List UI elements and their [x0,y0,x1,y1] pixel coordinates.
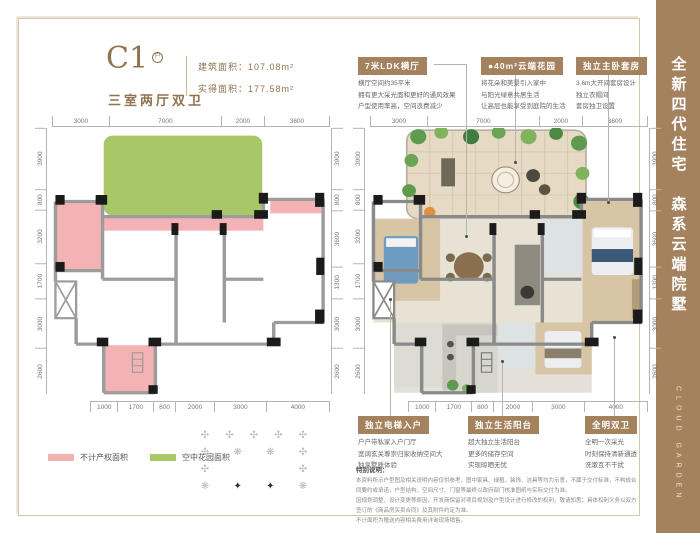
callout-line: 更多的储存空间 [468,449,520,461]
unit-badge: 户 [152,52,163,63]
sky-garden-area [103,134,264,216]
callout-line: 横厅空间约35平米 [358,78,456,90]
dim-label: 3900 [353,128,364,189]
callout-cloud-garden: ●40m²云端花园 [481,57,563,75]
dim-label: 800 [332,189,343,210]
sidebar-title-cn: 全新四代住宅 森系云端院墅 [668,56,689,316]
callout-line: 全明一次采光 [585,437,637,449]
entry-hall [394,323,442,388]
dim-label: 800 [472,402,493,412]
motif-glyph: ✣ [272,430,286,441]
callout-line: 拥有更大采光面和更好的通风效果 [358,90,456,102]
dim-label: 2600 [353,348,364,394]
leader-dot [613,336,616,339]
leader-dot [607,201,610,204]
dim-label: 1700 [436,402,472,412]
motif-glyph: ❋ [263,447,277,458]
leader-line [614,338,615,416]
sidebar-title-en: CLOUD GARDEN [675,386,682,502]
callout-line: 3.6m大开间套房设计 [576,78,636,90]
dim-label: 3600 [650,210,661,267]
callout-elevator-entry: 独立电梯入户 [358,416,429,434]
dim-row-top: 3000700020003600 [52,116,330,127]
dim-label: 3000 [650,298,661,348]
site-plan-motif: ✣✣✣✣✣ ✣❋❋✣ ✣✣ ❋✦✦❋ [198,430,310,498]
leader-dot [465,235,468,238]
dim-label: 2600 [650,348,661,394]
motif-glyph: ✣ [198,447,212,458]
bathroom-1 [542,219,582,275]
motif-glyph: ✣ [296,464,310,475]
dim-label: 3000 [353,298,364,348]
dim-label: 4000 [267,402,330,412]
dim-row-top: 3000700020003600 [370,116,648,127]
callout-bright-baths: 全明双卫 [585,416,637,434]
dim-label: 2000 [222,116,265,126]
dim-label: 3900 [650,128,661,189]
callout-life-balcony: 独立生活阳台 [468,416,539,434]
dim-label: 1000 [408,402,436,412]
legend-swatch-green [150,454,176,461]
dim-label: 3000 [52,116,110,126]
dim-label: 3200 [353,210,364,263]
callout-ldk-hall-text: 横厅空间约35平米拥有更大采光面和更好的通风效果户型使用率高，空间浪费减少 [358,78,456,113]
dim-label: 2600 [332,348,343,394]
disclaimer-title: 特别说明： [356,464,638,474]
sidebar-band: 全新四代住宅 森系云端院墅 CLOUD GARDEN [656,0,700,533]
motif-glyph: ✦ [231,481,245,492]
dim-label: 7000 [428,116,540,126]
non-property-area [55,201,102,270]
dim-label: 3600 [265,116,330,126]
leader-line [466,64,467,236]
motif-glyph: ❋ [231,447,245,458]
dim-label: 800 [650,189,661,210]
dim-label: 1300 [332,267,343,298]
disclaimer-line: 不计面积为赠送内容相关费用详询现场销售。 [356,517,638,527]
poster-page: C1 户 三室两厅双卫 建筑面积：107.08m²实得面积：177.58m² 全… [0,0,700,533]
callout-line: 将花朵和美景引入家中 [481,78,566,90]
disclaimer-line: 本资料所示户型图及相关说明内容仅供参考，图中家具、绿植、装饰、洁具等均为示意，不… [356,477,638,497]
dim-label: 2600 [35,348,46,394]
dim-col-left: 39008003200170030002600 [35,128,47,394]
callout-line: 套房独卫设置 [576,101,636,113]
floor-plan-drawing-schematic [52,128,330,396]
floor-plan-drawing-rendered [370,128,648,396]
callout-master-suite-text: 3.6m大开间套房设计独立衣帽间套房独卫设置 [576,78,636,113]
callout-cloud-garden-text: 将花朵和美景引入家中与阳光绿意共居生活让高层也能享受到庭院的生活 [481,78,566,113]
disclaimer-text: 本资料所示户型图及相关说明内容仅供参考，图中家具、绿植、装饰、洁具等均为示意，不… [356,477,638,526]
disclaimer: 特别说明： 本资料所示户型图及相关说明内容仅供参考，图中家具、绿植、装饰、洁具等… [356,464,638,526]
dim-label: 3900 [332,128,343,189]
callout-line: 户户带私家入户门厅 [358,437,443,449]
dim-label: 2000 [540,116,583,126]
dim-label: 3200 [35,210,46,263]
dim-label: 3000 [35,298,46,348]
motif-glyph: ❋ [296,481,310,492]
dim-label: 3600 [583,116,648,126]
garden-terrace [402,128,589,219]
dim-label: 800 [154,402,175,412]
motif-glyph: ✣ [198,464,212,475]
header-divider [186,56,187,96]
dim-label: 1300 [650,267,661,298]
leader-dot [501,360,504,363]
dim-row-bottom: 10001700800200030004000 [408,401,648,412]
callout-line: 与阳光绿意共居生活 [481,90,566,102]
legend-swatch-pink [48,454,74,461]
dim-label: 2000 [494,402,533,412]
dim-label: 3000 [332,298,343,348]
dim-row-bottom: 10001700800200030004000 [90,401,330,412]
leader-line [390,300,391,416]
callout-line: 宽阔玄关尊崇归家收纳空间大 [358,449,443,461]
legend-label: 不计产权面积 [80,452,128,463]
floor-plan-rendered: 3000700020003600 39008003200170030002600… [350,116,662,414]
dim-label: 1000 [90,402,118,412]
dim-label: 1700 [118,402,154,412]
unit-code: C1 [106,44,148,74]
dim-label: 3000 [370,116,428,126]
dim-label: 1700 [353,263,364,298]
leader-line [434,64,466,65]
elevator-icon [55,281,76,318]
callout-line: 让高层也能享受到庭院的生活 [481,101,566,113]
area-line: 实得面积：177.58m² [198,82,294,95]
leader-dot [389,298,392,301]
dim-label: 800 [353,189,364,210]
callout-line: 户型使用率高，空间浪费减少 [358,101,456,113]
callout-line: 时刻保持清新通透 [585,449,637,461]
dim-label: 2000 [176,402,215,412]
callout-line: 超大独立生活阳台 [468,437,520,449]
dim-label: 4000 [585,402,648,412]
motif-glyph: ✣ [223,430,237,441]
dim-label: 3000 [215,402,266,412]
garden-table [492,167,520,193]
motif-glyph: ❋ [198,481,212,492]
leader-dot [514,161,517,164]
area-line: 建筑面积：107.08m² [198,60,294,73]
area-figures: 建筑面积：107.08m²实得面积：177.58m² [198,60,294,104]
dim-label: 3000 [533,402,584,412]
dim-label: 3600 [332,210,343,267]
floor-plan-schematic: 3000700020003600 39008003200170030002600… [32,116,344,414]
motif-glyph: ✣ [247,430,261,441]
callout-master-suite: 独立主卧套房 [576,57,647,75]
motif-glyph: ✦ [263,481,277,492]
dim-label: 1700 [35,263,46,298]
motif-glyph: ✣ [198,430,212,441]
dim-label: 7000 [110,116,222,126]
dim-col-right: 39008003600130030002600 [649,128,661,394]
dim-col-right: 39008003600130030002600 [331,128,343,394]
motif-glyph: ✣ [296,430,310,441]
dim-col-left: 39008003200170030002600 [353,128,365,394]
callout-line: 独立衣帽间 [576,90,636,102]
disclaimer-line: 因规划调整、设计变更等原因，开发商保留对项目规划及户型设计进行修改的权利，敬请知… [356,497,638,517]
legend-item-pink: 不计产权面积 [48,452,128,463]
dim-label: 800 [35,189,46,210]
leader-line [502,362,503,416]
motif-glyph: ✣ [296,447,310,458]
callout-ldk-hall: 7米LDK横厅 [358,57,427,75]
dim-label: 3900 [35,128,46,189]
